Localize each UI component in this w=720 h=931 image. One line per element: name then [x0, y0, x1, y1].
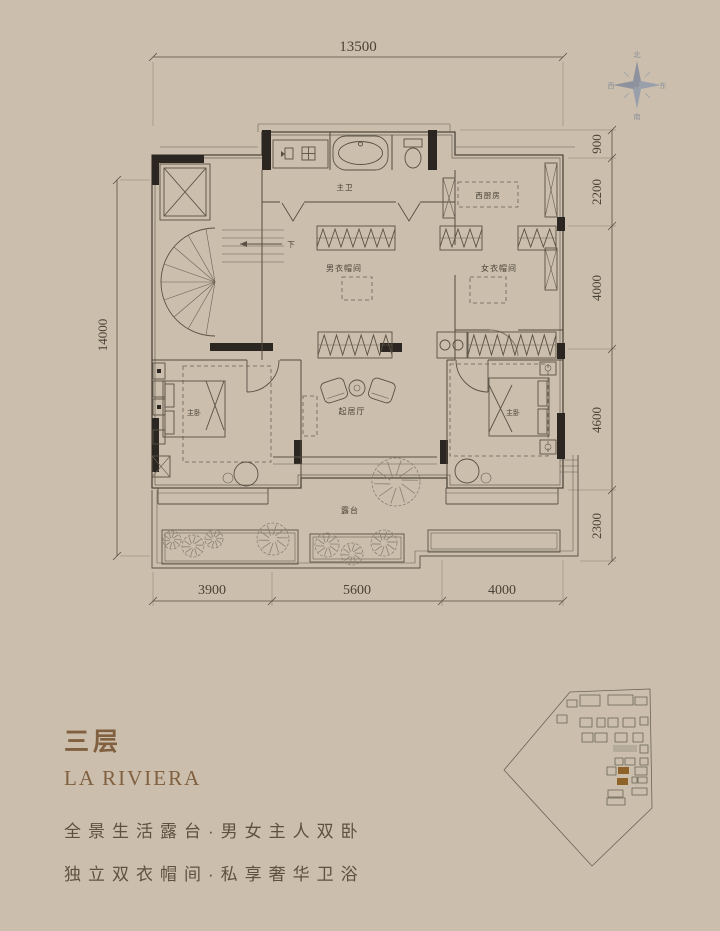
tree: [315, 533, 339, 557]
closet-islands: [303, 277, 506, 436]
dim-right-1: 900: [589, 134, 604, 154]
bed-right: [450, 364, 549, 456]
basin-cabinet: [437, 332, 467, 358]
dim-right-3: 4000: [589, 275, 604, 301]
compass-north-label: 北: [634, 51, 641, 59]
room-label-mens-closet: 男衣帽间: [326, 263, 362, 273]
feature-line-1: 全景生活露台·男女主人双卧: [64, 817, 365, 842]
wardrobe-womens-a: [440, 226, 482, 250]
dim-left-label: 14000: [95, 319, 110, 352]
info-block: 三层 LA RIVIERA 全景生活露台·男女主人双卧 独立双衣帽间·私享奢华卫…: [64, 722, 365, 885]
compass-icon: 北 南 西 东: [608, 51, 667, 121]
room-label-terrace: 露台: [341, 505, 359, 515]
compass-south-label: 南: [634, 112, 641, 121]
room-label-west-kitchen: 西厨房: [475, 190, 501, 200]
compass-east-label: 东: [660, 81, 667, 90]
elevator: [160, 164, 210, 220]
tree: [257, 523, 289, 555]
dim-bottom-2: 5600: [343, 583, 371, 598]
window-louvers: [152, 163, 557, 477]
highlighted-unit: [617, 767, 629, 785]
feature-line-2: 独立双衣帽间·私享奢华卫浴: [64, 860, 365, 885]
bed-left: [163, 366, 271, 462]
project-name: LA RIVIERA: [64, 766, 365, 791]
chair-left-bedroom: [223, 462, 258, 486]
dim-right-2: 2200: [589, 179, 604, 205]
dimension-bottom: 3900 5600 4000: [149, 560, 567, 606]
exterior-walls: [152, 124, 575, 488]
wardrobe-lower-left: [318, 332, 392, 358]
bay-window-right: [446, 488, 558, 504]
toilet: [404, 139, 422, 168]
floor-plan-drawing: 13500 3900 5600 4000 900 2200 4000 4600: [0, 0, 720, 660]
living-chairs: [319, 377, 396, 404]
spiral-stair: 下: [161, 228, 295, 336]
site-key-plan: [495, 672, 665, 877]
bathtub: [333, 136, 388, 170]
tree: [163, 531, 181, 549]
floorplan-page: 13500 3900 5600 4000 900 2200 4000 4600: [0, 0, 720, 931]
room-label-bedroom-left: 主卧: [187, 408, 201, 417]
wardrobe-lower-right: [468, 332, 556, 358]
terrace-outline: [152, 455, 578, 568]
stair-down-label: 下: [287, 240, 295, 249]
dim-top-label: 13500: [339, 39, 377, 55]
room-label-womens-closet: 女衣帽间: [481, 263, 517, 273]
compass-west-label: 西: [608, 82, 615, 90]
room-label-master-bath: 主卫: [337, 182, 354, 192]
tree: [182, 535, 204, 557]
wardrobe-womens-b: [518, 226, 556, 250]
bath-vanity: [273, 140, 328, 168]
wardrobe-mens: [317, 226, 395, 250]
bay-window-left: [158, 488, 268, 504]
dim-right-4: 4600: [589, 407, 604, 433]
tree: [372, 458, 420, 506]
dimension-left: 14000: [95, 176, 150, 560]
room-label-bedroom-right: 主卧: [506, 408, 520, 417]
dim-right-5: 2300: [589, 513, 604, 539]
dimension-top: 13500: [149, 39, 567, 126]
interior-walls: [152, 132, 563, 478]
wall-piers: [152, 130, 565, 472]
room-label-living: 起居厅: [339, 407, 366, 416]
floor-title: 三层: [64, 722, 365, 758]
chair-right-bedroom: [455, 459, 491, 483]
dim-bottom-3: 4000: [488, 583, 516, 598]
site-boundary: [504, 689, 652, 866]
dim-bottom-1: 3900: [198, 583, 226, 598]
